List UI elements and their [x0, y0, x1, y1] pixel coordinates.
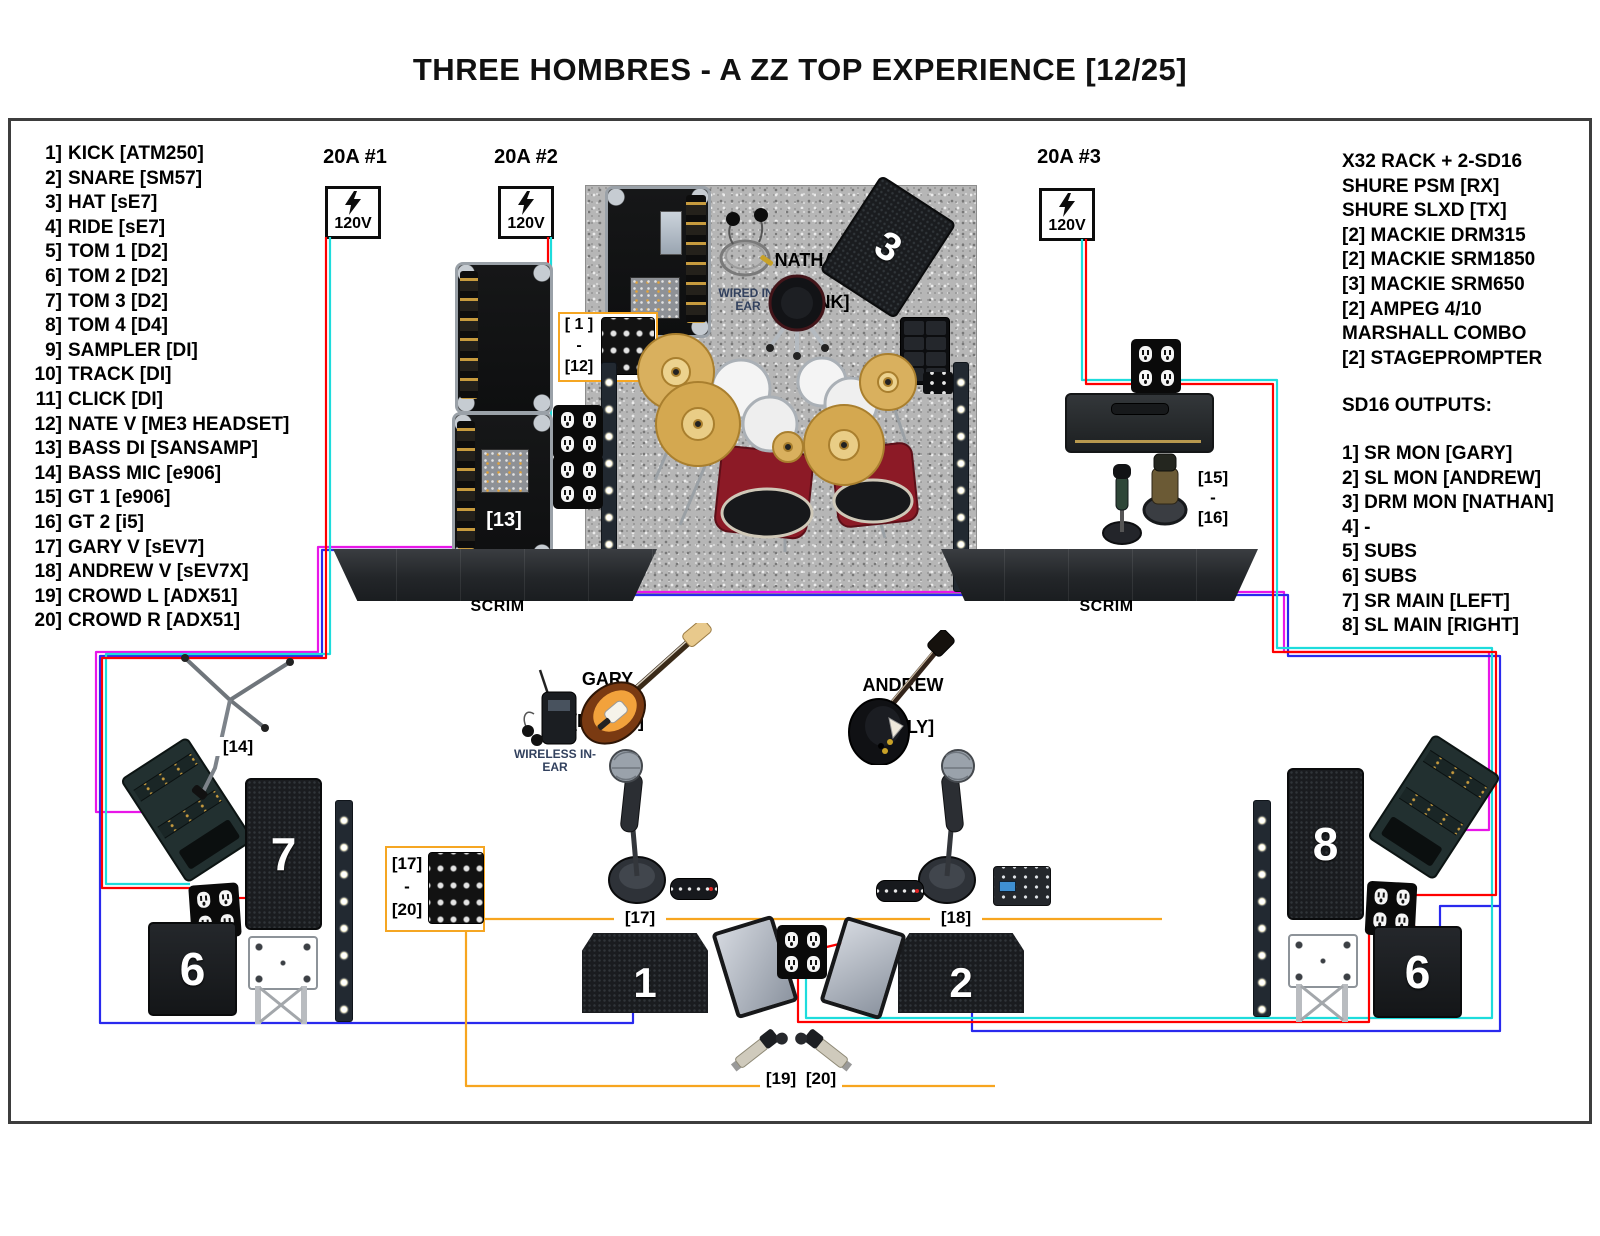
stageprompter-remote — [670, 878, 718, 900]
speaker-number: 3 — [866, 222, 909, 272]
crowd-mic-right-tag: [20] — [800, 1069, 842, 1088]
bass-di-rack-case: [13] — [452, 412, 553, 564]
truss-totem-plate — [248, 936, 318, 990]
bass-di-tag: [13] — [479, 511, 529, 530]
andrew-vocal-tag: [18] — [930, 908, 982, 927]
gary-vocal-tag: [17] — [614, 908, 666, 927]
quad-outlet — [777, 925, 827, 979]
sansamp-face — [481, 449, 529, 493]
monitor-wedge-1: 1 — [582, 933, 708, 1013]
speaker-number: 7 — [271, 827, 297, 881]
main-speaker-right: 8 — [1287, 768, 1364, 920]
pedal-screen — [999, 881, 1016, 892]
rack-modules — [457, 421, 475, 549]
rack-screen — [660, 211, 682, 255]
led-bar — [335, 800, 353, 1022]
gary-vocal-mic — [592, 718, 682, 908]
quad-outlet — [553, 455, 603, 509]
quad-outlet — [1131, 339, 1181, 393]
crowd-mic-left-tag: [19] — [760, 1069, 802, 1088]
gt-mics-label: [15] - [16] — [1185, 468, 1241, 528]
speaker-number: 6 — [1405, 945, 1431, 999]
amp-rack-case — [455, 262, 553, 414]
led-bar — [1253, 800, 1271, 1017]
scrim-right — [941, 549, 1258, 601]
truss-totem-base — [252, 986, 310, 1024]
quad-outlet — [553, 405, 603, 459]
snake-box-17-20 — [428, 852, 484, 924]
bass-mic-tag: [14] — [215, 737, 261, 756]
speaker-number: 8 — [1313, 817, 1339, 871]
amp-gold-piping — [1075, 440, 1201, 443]
truss-totem-base — [1293, 984, 1351, 1022]
scrim-left-label: SCRIM — [445, 598, 550, 616]
stage-plot: THREE HOMBRES - A ZZ TOP EXPERIENCE [12/… — [0, 0, 1600, 1236]
rack-modules — [460, 271, 478, 399]
amp-handle — [1111, 403, 1169, 415]
sub-left: 6 — [148, 922, 237, 1016]
guitar-pedalboard — [993, 866, 1051, 906]
speaker-number: 6 — [180, 942, 206, 996]
monitor-wedge-2: 2 — [898, 933, 1024, 1013]
snake-box-17-20-label: [17] - [20] — [387, 852, 427, 921]
speaker-number: 2 — [949, 953, 972, 1013]
main-speaker-left: 7 — [245, 778, 322, 930]
speaker-number: 1 — [633, 953, 656, 1013]
marshall-combo — [1065, 393, 1214, 453]
wireless-in-ear-pack — [518, 668, 588, 756]
stageprompter-remote — [876, 880, 924, 902]
scrim-left — [333, 549, 657, 601]
scrim-right-label: SCRIM — [1054, 598, 1159, 616]
truss-totem-plate — [1288, 934, 1358, 988]
rack-modules — [686, 195, 706, 323]
sub-right: 6 — [1373, 926, 1462, 1018]
wireless-in-ear-label: WIRELESS IN-EAR — [512, 748, 598, 774]
